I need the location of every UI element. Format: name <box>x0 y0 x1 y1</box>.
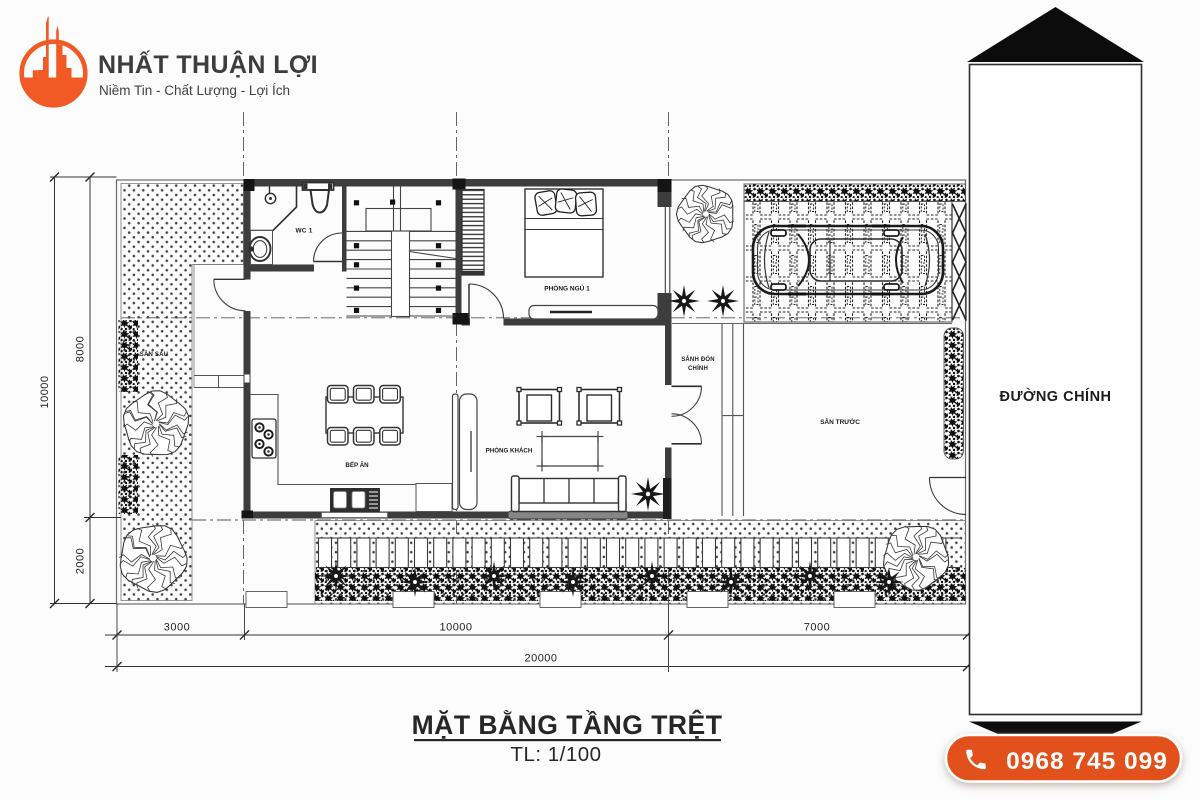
svg-text:ĐƯỜNG CHÍNH: ĐƯỜNG CHÍNH <box>999 387 1111 405</box>
svg-text:7000: 7000 <box>804 622 830 634</box>
svg-text:10000: 10000 <box>439 622 472 634</box>
svg-text:Niềm Tin - Chất Lượng - Lợi Íc: Niềm Tin - Chất Lượng - Lợi Ích <box>99 83 290 98</box>
svg-text:10000: 10000 <box>39 375 51 408</box>
svg-text:0968 745 099: 0968 745 099 <box>1006 748 1168 775</box>
svg-text:WC 1: WC 1 <box>295 228 312 235</box>
svg-text:NHẤT THUẬN LỢI: NHẤT THUẬN LỢI <box>98 49 318 79</box>
svg-text:CHÍNH: CHÍNH <box>688 364 708 372</box>
svg-text:2000: 2000 <box>75 548 87 574</box>
svg-text:TL: 1/100: TL: 1/100 <box>510 743 601 766</box>
svg-text:20000: 20000 <box>524 653 557 665</box>
svg-text:SÂN SAU: SÂN SAU <box>140 351 168 358</box>
svg-text:SÂN TRƯỚC: SÂN TRƯỚC <box>820 417 860 426</box>
svg-text:PHÒNG KHÁCH: PHÒNG KHÁCH <box>486 447 533 455</box>
svg-text:PHÒNG NGỦ 1: PHÒNG NGỦ 1 <box>544 284 590 293</box>
svg-text:8000: 8000 <box>75 336 87 362</box>
svg-text:BẾP ĂN: BẾP ĂN <box>345 462 369 469</box>
svg-text:MẶT BẰNG TẦNG TRỆT: MẶT BẰNG TẦNG TRỆT <box>412 710 723 740</box>
svg-text:SẢNH ĐÓN: SẢNH ĐÓN <box>681 355 715 363</box>
svg-text:3000: 3000 <box>164 622 190 634</box>
